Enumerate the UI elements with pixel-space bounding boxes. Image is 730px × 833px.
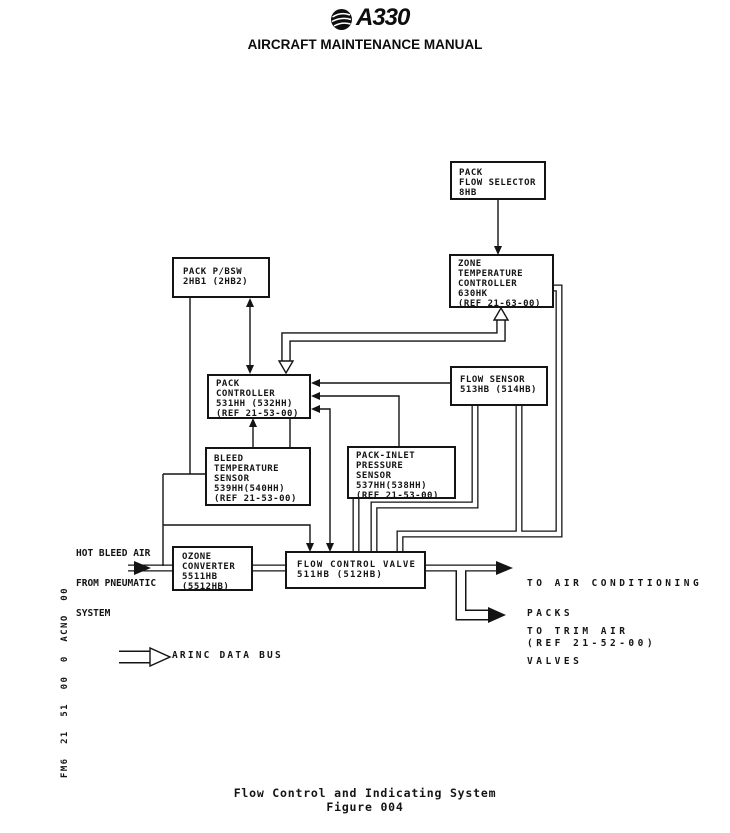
arrow-into-controller-r2-icon: [311, 392, 320, 400]
pipe-trim-branch: [461, 570, 488, 615]
box-flow-sensor: FLOW SENSOR 513HB (514HB): [450, 366, 548, 406]
arrow-into-controller-r3-icon: [311, 405, 320, 413]
box-line: (REF 21-53-00): [216, 409, 309, 419]
box-line: 630HK: [458, 289, 552, 299]
box-line: (REF 21-63-00): [458, 299, 552, 309]
box-line: BLEED: [214, 454, 309, 464]
box-pack-controller: PACK CONTROLLER 531HH (532HH) (REF 21-53…: [207, 374, 311, 419]
box-line: 513HB (514HB): [460, 385, 546, 395]
figure-caption: Flow Control and Indicating System: [0, 786, 730, 800]
box-line: (REF 21-53-00): [214, 494, 309, 504]
box-pack-pbsw: PACK P/BSW 2HB1 (2HB2): [172, 257, 270, 298]
box-line: 5511HB: [182, 572, 251, 582]
arrow-into-pbsw-icon: [246, 298, 254, 307]
pipe-zone-to-valve-line: [400, 288, 559, 551]
box-line: (5512HB): [182, 582, 251, 592]
box-line: ZONE: [458, 259, 552, 269]
label-to-trim-air-valves: TO TRIM AIR VALVES: [527, 607, 628, 687]
box-line: 539HH(540HH): [214, 484, 309, 494]
box-line: 2HB1 (2HB2): [183, 277, 268, 287]
arrow-into-controller-bottom-icon: [249, 418, 257, 427]
box-line: PRESSURE: [356, 461, 454, 471]
box-bleed-temperature-sensor: BLEED TEMPERATURE SENSOR 539HH(540HH) (R…: [205, 447, 311, 506]
box-line: CONTROLLER: [216, 389, 309, 399]
box-line: 537HH(538HH): [356, 481, 454, 491]
line-to-valve-left: [163, 525, 310, 543]
box-line: OZONE: [182, 552, 251, 562]
bus-arrow-down-icon: [279, 361, 293, 373]
arrow-into-controller-r1-icon: [311, 379, 320, 387]
manual-page: A330 AIRCRAFT MAINTENANCE MANUAL: [0, 0, 730, 833]
box-line: FLOW CONTROL VALVE: [297, 560, 424, 570]
label-hot-bleed-air: HOT BLEED AIR FROM PNEUMATIC SYSTEM: [76, 529, 156, 639]
box-line: FLOW SELECTOR: [459, 178, 544, 188]
to-trim-arrow-icon: [488, 607, 506, 623]
diagram-linework: [0, 0, 730, 833]
box-line: 511HB (512HB): [297, 570, 424, 580]
box-line: SENSOR: [214, 474, 309, 484]
box-ozone-converter: OZONE CONVERTER 5511HB (5512HB): [172, 546, 253, 591]
line-controller-to-valve: [319, 409, 330, 543]
figure-number: Figure 004: [0, 800, 730, 814]
box-line: PACK P/BSW: [183, 267, 268, 277]
box-pack-flow-selector: PACK FLOW SELECTOR 8HB: [450, 161, 546, 200]
box-zone-temperature-controller: ZONE TEMPERATURE CONTROLLER 630HK (REF 2…: [449, 254, 554, 308]
box-line: (REF 21-53-00): [356, 491, 454, 501]
arinc-bus-pack-zone: [279, 308, 508, 373]
arrow-into-controller-top-icon: [246, 365, 254, 374]
box-line: PACK: [459, 168, 544, 178]
box-line: PACK-INLET: [356, 451, 454, 461]
line-pressure-to-controller: [320, 396, 399, 446]
box-line: PACK: [216, 379, 309, 389]
bus-arrow-up-icon: [494, 308, 508, 320]
legend-arinc-arrow-icon: [119, 648, 170, 666]
box-line: CONTROLLER: [458, 279, 552, 289]
box-flow-control-valve: FLOW CONTROL VALVE 511HB (512HB): [285, 551, 426, 589]
label-arinc-data-bus: ARINC DATA BUS: [172, 651, 283, 661]
box-line: SENSOR: [356, 471, 454, 481]
box-line: FLOW SENSOR: [460, 375, 546, 385]
box-pack-inlet-pressure-sensor: PACK-INLET PRESSURE SENSOR 537HH(538HH) …: [347, 446, 456, 499]
box-line: 531HH (532HH): [216, 399, 309, 409]
document-code-vertical: FM6 21 51 00 0 ACNO 00: [60, 587, 70, 778]
box-line: TEMPERATURE: [214, 464, 309, 474]
box-line: 8HB: [459, 188, 544, 198]
box-line: TEMPERATURE: [458, 269, 552, 279]
box-line: CONVERTER: [182, 562, 251, 572]
to-packs-arrow-icon: [496, 561, 513, 575]
